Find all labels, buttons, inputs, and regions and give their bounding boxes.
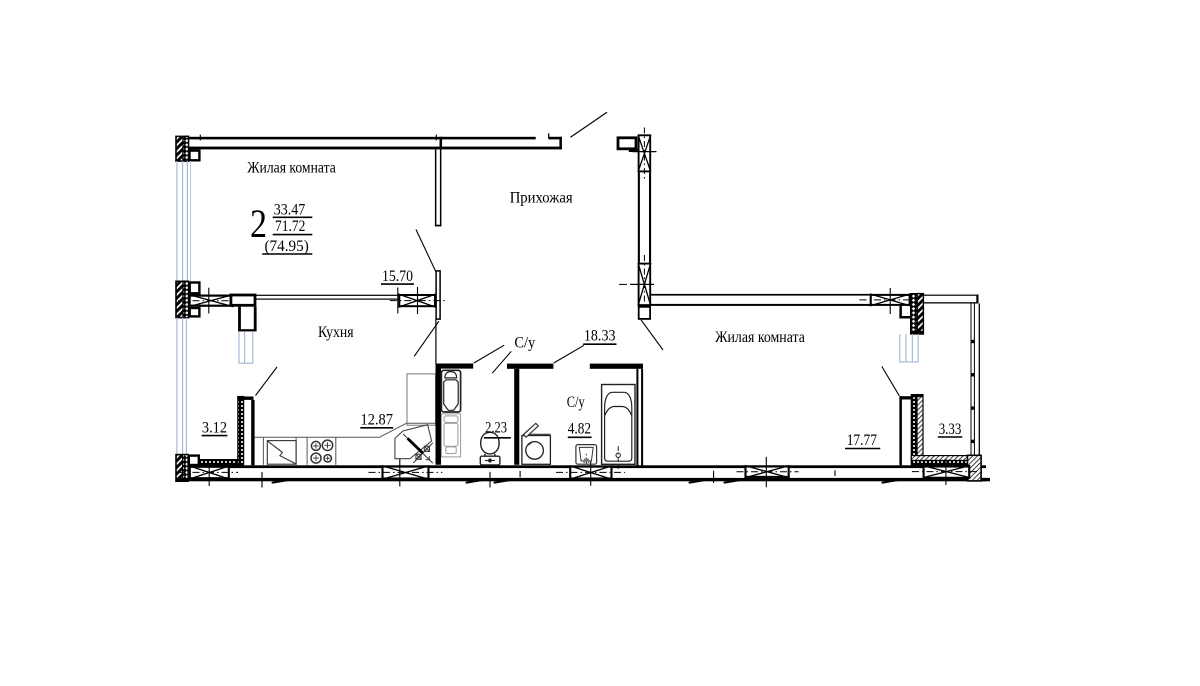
svg-text:12.87: 12.87 xyxy=(361,411,394,428)
svg-text:Прихожая: Прихожая xyxy=(510,189,573,206)
svg-text:71.72: 71.72 xyxy=(275,218,305,235)
svg-text:С/у: С/у xyxy=(567,394,585,411)
svg-text:4.82: 4.82 xyxy=(568,420,591,437)
svg-text:(74.95): (74.95) xyxy=(265,238,309,255)
svg-text:18.33: 18.33 xyxy=(584,328,616,345)
svg-text:2.23: 2.23 xyxy=(485,420,507,437)
svg-text:Кухня: Кухня xyxy=(318,324,354,341)
svg-text:С/у: С/у xyxy=(514,334,535,351)
svg-text:Жилая комната: Жилая комната xyxy=(715,329,805,346)
svg-text:3.12: 3.12 xyxy=(202,420,227,437)
svg-text:33.47: 33.47 xyxy=(274,202,306,219)
svg-text:3.33: 3.33 xyxy=(939,421,962,438)
svg-text:17.77: 17.77 xyxy=(847,432,877,449)
svg-text:15.70: 15.70 xyxy=(382,268,413,285)
svg-text:Жилая комната: Жилая комната xyxy=(247,160,335,177)
